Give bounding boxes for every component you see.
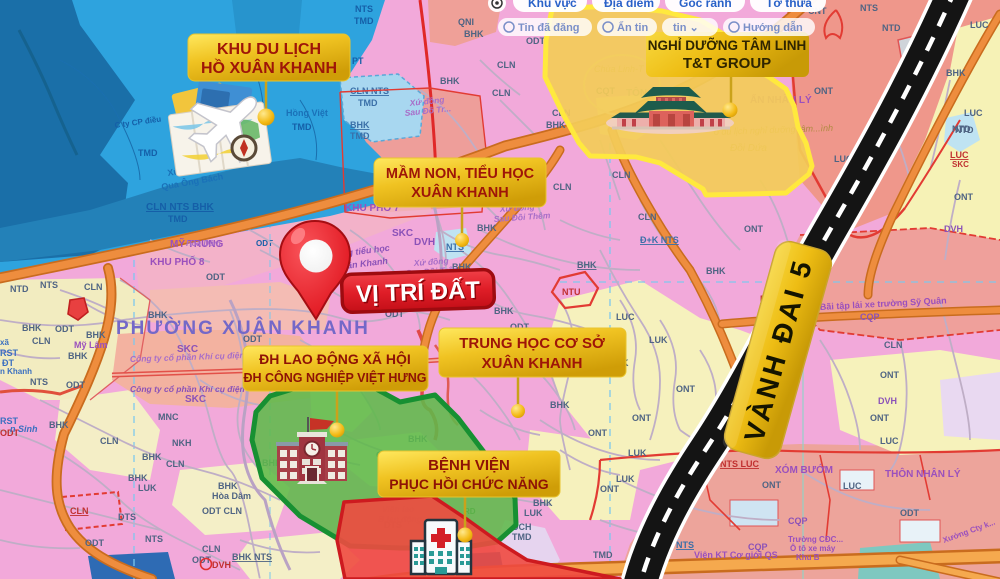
svg-text:LUC: LUC [964, 108, 983, 118]
svg-text:Mỹ Lâm: Mỹ Lâm [74, 340, 108, 350]
svg-text:Đ+K NTS: Đ+K NTS [640, 235, 679, 245]
svg-text:ONT: ONT [744, 224, 764, 234]
svg-text:LUC: LUC [880, 436, 899, 446]
svg-text:NKH: NKH [172, 438, 192, 448]
svg-text:BHK: BHK [22, 323, 42, 333]
svg-text:ODT: ODT [243, 334, 263, 344]
svg-text:TMD: TMD [292, 122, 312, 132]
svg-text:PT: PT [352, 56, 364, 66]
svg-text:xã: xã [0, 338, 9, 347]
svg-text:ONT: ONT [588, 428, 608, 438]
svg-text:TMD: TMD [354, 16, 374, 26]
svg-text:BHK: BHK [148, 310, 168, 320]
svg-text:Ẩn tin: Ẩn tin [617, 21, 648, 34]
svg-text:XUÂN KHANH: XUÂN KHANH [482, 354, 583, 372]
svg-text:NTD: NTD [10, 284, 29, 294]
svg-text:ODT: ODT [85, 538, 105, 548]
svg-text:ONT: ONT [880, 370, 900, 380]
svg-text:CQP: CQP [860, 312, 880, 322]
svg-text:ONT: ONT [954, 192, 974, 202]
svg-text:ODT: ODT [66, 380, 86, 390]
svg-text:BHK: BHK [946, 68, 966, 78]
svg-text:CLN: CLN [84, 282, 103, 292]
svg-text:LUK: LUK [138, 483, 157, 493]
svg-text:MNC: MNC [158, 412, 179, 422]
svg-text:SKC: SKC [185, 394, 206, 405]
svg-text:DVH: DVH [414, 237, 435, 248]
svg-text:NTS: NTS [40, 280, 58, 290]
svg-text:CLN: CLN [497, 60, 516, 70]
svg-text:Khu B: Khu B [796, 553, 820, 562]
svg-text:n Sinh: n Sinh [10, 424, 38, 434]
svg-text:BHK: BHK [86, 330, 106, 340]
svg-text:LUC: LUC [843, 481, 862, 491]
svg-text:XÓM BƯỚM: XÓM BƯỚM [775, 463, 833, 476]
svg-text:LUC: LUC [616, 312, 635, 322]
svg-text:CLN: CLN [638, 212, 657, 222]
svg-text:Tin đã đăng: Tin đã đăng [518, 22, 580, 34]
svg-text:n Khanh: n Khanh [0, 367, 32, 376]
svg-text:NTS: NTS [676, 540, 694, 550]
svg-text:CLN: CLN [612, 170, 631, 180]
svg-text:ONT: ONT [676, 384, 696, 394]
svg-text:QNI: QNI [458, 17, 474, 27]
svg-text:NTS: NTS [30, 377, 48, 387]
svg-text:ODT: ODT [256, 239, 273, 248]
svg-text:TMD: TMD [358, 98, 378, 108]
svg-text:CLN: CLN [553, 182, 572, 192]
svg-text:TMD: TMD [138, 148, 158, 158]
svg-text:Hòa Dâm: Hòa Dâm [212, 491, 251, 501]
svg-text:NTS: NTS [860, 3, 878, 13]
svg-text:LUK: LUK [524, 508, 543, 518]
svg-text:BHK: BHK [350, 120, 370, 130]
svg-text:BHK: BHK [218, 481, 238, 491]
svg-text:CLN: CLN [100, 436, 119, 446]
svg-text:LUK: LUK [616, 474, 635, 484]
svg-text:CQP: CQP [788, 516, 808, 526]
svg-text:NGHỈ DƯỠNG TÂM LINH: NGHỈ DƯỠNG TÂM LINH [648, 38, 806, 53]
svg-text:Góc ranh: Góc ranh [679, 0, 732, 10]
svg-text:ODT: ODT [206, 272, 226, 282]
svg-text:HỒ XUÂN KHANH: HỒ XUÂN KHANH [201, 58, 337, 77]
svg-text:MẦM NON, TIỂU HỌC: MẦM NON, TIỂU HỌC [386, 164, 535, 182]
svg-text:CLN: CLN [202, 544, 221, 554]
svg-text:NTU: NTU [562, 287, 581, 297]
svg-text:CLN: CLN [884, 340, 903, 350]
svg-text:TMD: TMD [512, 532, 532, 542]
svg-text:Ô tô xe máy: Ô tô xe máy [790, 544, 836, 553]
svg-text:NTS: NTS [355, 4, 373, 14]
svg-text:BHK: BHK [706, 266, 726, 276]
svg-text:NTD: NTD [955, 125, 974, 135]
svg-text:Khu vực: Khu vực [528, 0, 577, 10]
svg-text:CLN NTS BHK: CLN NTS BHK [146, 202, 215, 213]
svg-text:ĐH LAO ĐỘNG XÃ HỘI: ĐH LAO ĐỘNG XÃ HỘI [259, 350, 411, 367]
svg-text:ONT: ONT [870, 413, 890, 423]
svg-text:BHK: BHK [477, 223, 497, 233]
svg-text:Hướng dẫn: Hướng dẫn [743, 21, 803, 34]
svg-text:THÔN NHÂN LÝ: THÔN NHÂN LÝ [885, 467, 961, 480]
svg-text:BHK: BHK [68, 351, 88, 361]
svg-text:BHK: BHK [577, 260, 597, 270]
svg-text:SKC: SKC [952, 160, 969, 169]
svg-text:BHK: BHK [464, 29, 484, 39]
svg-text:ODT CLN: ODT CLN [202, 506, 242, 516]
svg-text:BHK: BHK [533, 498, 553, 508]
svg-text:LUC: LUC [950, 150, 969, 160]
svg-text:tin ⌄: tin ⌄ [673, 22, 699, 34]
svg-text:LUK: LUK [628, 448, 647, 458]
svg-text:BHK: BHK [440, 76, 460, 86]
svg-text:T&T GROUP: T&T GROUP [683, 55, 771, 72]
svg-text:ODT: ODT [526, 36, 546, 46]
svg-text:BHK: BHK [546, 120, 566, 130]
svg-text:Địa điểm: Địa điểm [604, 0, 654, 10]
svg-text:LUK: LUK [649, 335, 668, 345]
svg-text:NTD: NTD [882, 23, 901, 33]
svg-text:CLN: CLN [492, 88, 511, 98]
svg-text:KHU DU LỊCH: KHU DU LỊCH [217, 41, 321, 58]
svg-text:NTS: NTS [145, 534, 163, 544]
svg-text:ODT: ODT [55, 324, 75, 334]
svg-text:BHK NTS: BHK NTS [232, 552, 272, 562]
svg-text:BHK: BHK [128, 473, 148, 483]
svg-text:DVH: DVH [944, 224, 963, 234]
svg-text:ONT: ONT [632, 413, 652, 423]
svg-text:XUÂN KHANH: XUÂN KHANH [411, 183, 508, 201]
svg-text:Công ty cổ phần Khí cụ điện: Công ty cổ phần Khí cụ điện [130, 384, 245, 394]
svg-text:PHỤC HỒI CHỨC NĂNG: PHỤC HỒI CHỨC NĂNG [389, 475, 549, 492]
svg-text:LUC: LUC [970, 20, 989, 30]
svg-text:RST: RST [0, 348, 19, 358]
svg-text:BỆNH VIỆN: BỆNH VIỆN [428, 456, 510, 474]
svg-text:ONT: ONT [814, 86, 834, 96]
svg-text:SKC: SKC [392, 228, 413, 239]
svg-text:SKC: SKC [177, 344, 198, 355]
svg-text:BHK: BHK [550, 400, 570, 410]
svg-text:BHK: BHK [494, 306, 514, 316]
svg-text:ODT: ODT [900, 508, 920, 518]
svg-text:DTS: DTS [118, 512, 136, 522]
svg-text:CLN: CLN [32, 336, 51, 346]
svg-text:ĐH CÔNG NGHIỆP VIỆT HƯNG: ĐH CÔNG NGHIỆP VIỆT HƯNG [243, 370, 426, 385]
svg-text:DVH: DVH [212, 560, 231, 570]
svg-text:TRUNG HỌC CƠ SỞ: TRUNG HỌC CƠ SỞ [459, 334, 605, 352]
svg-text:DVH: DVH [878, 396, 897, 406]
svg-text:VỊ TRÍ ĐẤT: VỊ TRÍ ĐẤT [356, 276, 481, 308]
svg-text:CLN: CLN [70, 506, 89, 516]
svg-text:Hồng Việt: Hồng Việt [286, 108, 328, 118]
svg-text:CLN: CLN [166, 459, 185, 469]
svg-text:TMD: TMD [350, 131, 370, 141]
svg-text:Hòa Dâm: Hòa Dâm [186, 239, 221, 248]
svg-text:Trường CĐC...: Trường CĐC... [788, 535, 843, 544]
svg-text:TMD: TMD [593, 550, 613, 560]
svg-text:CQP: CQP [748, 542, 768, 552]
svg-text:BHK: BHK [142, 452, 162, 462]
svg-text:TMD: TMD [168, 214, 188, 224]
svg-text:BHK: BHK [49, 420, 69, 430]
svg-text:Tờ thửa: Tờ thửa [766, 0, 812, 10]
svg-text:NTS LUC: NTS LUC [720, 459, 759, 469]
svg-text:ONT: ONT [600, 484, 620, 494]
svg-text:KHU PHỐ 8: KHU PHỐ 8 [150, 254, 205, 268]
svg-text:ONT: ONT [762, 480, 782, 490]
